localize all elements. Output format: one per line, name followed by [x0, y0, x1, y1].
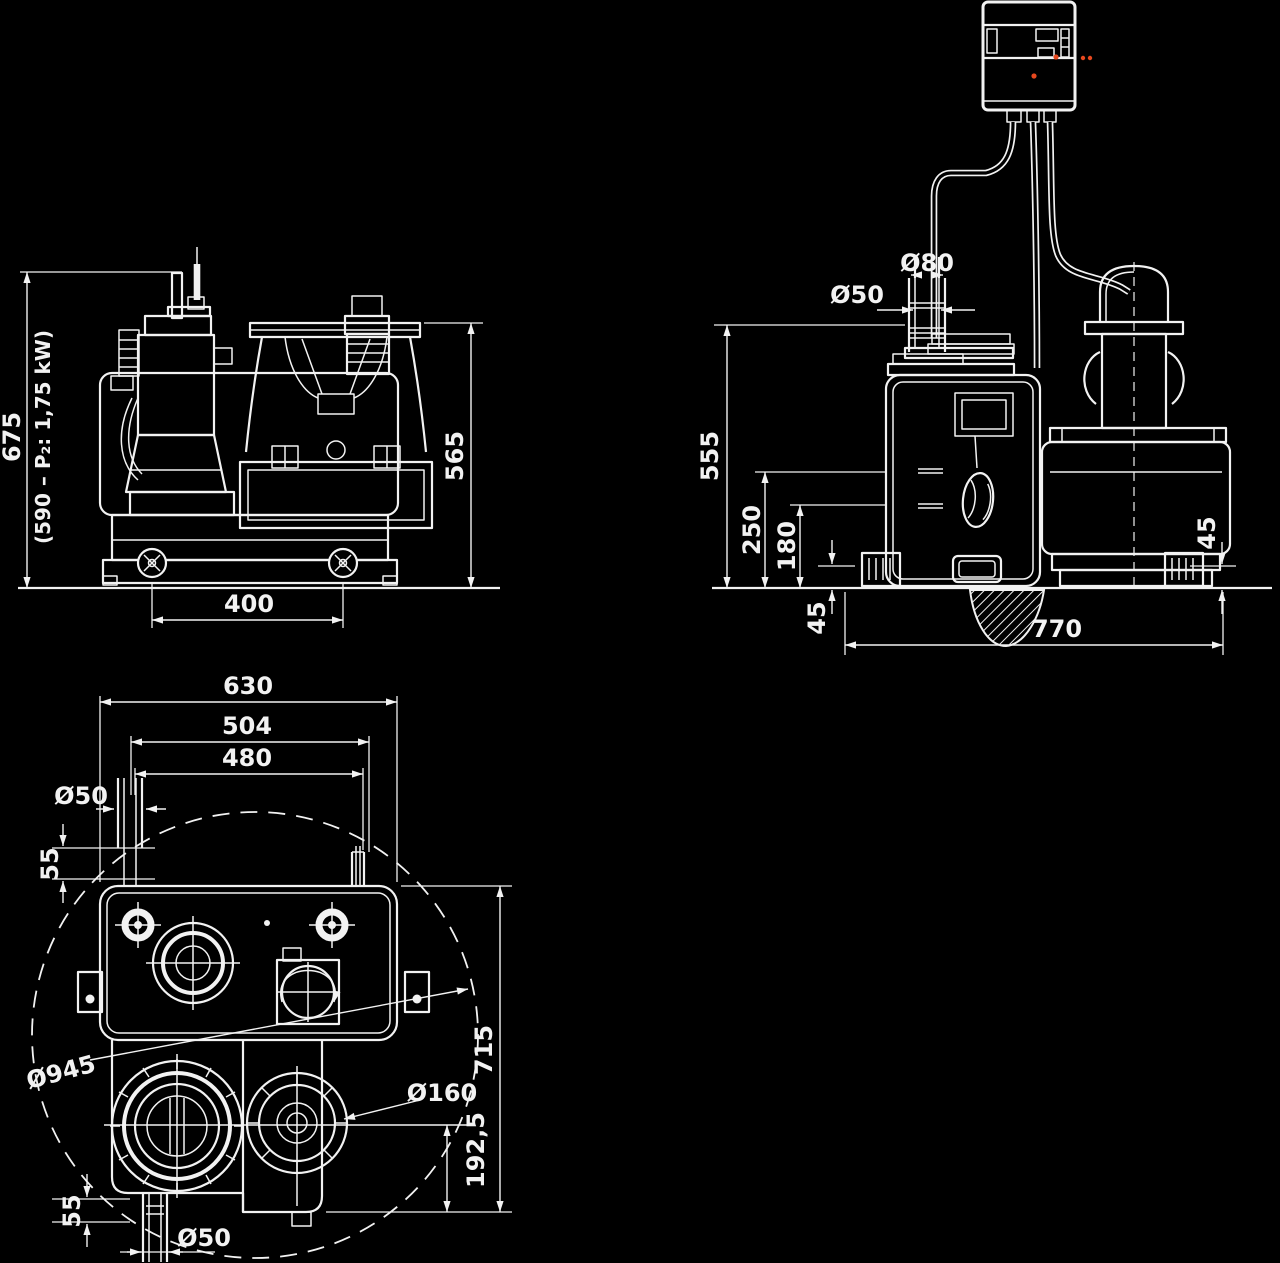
- dim-side-250: 250: [738, 505, 766, 555]
- plan-dim-630: 630: [100, 672, 397, 882]
- dim-front-675: 675: [0, 412, 26, 462]
- front-wheel-right: [329, 549, 357, 577]
- dim-plan-630: 630: [223, 672, 273, 700]
- dim-front-note: (590 – P₂: 1,75 kW): [31, 330, 55, 544]
- cables: [934, 122, 1129, 368]
- float-switch: [960, 472, 995, 529]
- plan-connection-right: [309, 902, 355, 948]
- side-view: Ø80 Ø50 555 250 180 45: [696, 2, 1272, 655]
- dim-plan-55-bottom: 55: [58, 1194, 86, 1227]
- dim-front-565: 565: [441, 431, 469, 481]
- plan-bracket-left: [78, 972, 102, 1012]
- led-indicator: [1088, 56, 1092, 60]
- front-pump-right: [345, 296, 389, 374]
- dim-side-d50: Ø50: [830, 281, 884, 309]
- led-indicator: [1053, 54, 1058, 59]
- plan-bracket-right: [405, 972, 429, 1012]
- plan-dim-55-top: 55: [36, 824, 155, 903]
- led-indicator: [1031, 73, 1036, 78]
- dim-side-45-left: 45: [803, 601, 831, 634]
- dim-side-770: 770: [1032, 615, 1082, 643]
- led-indicator: [1081, 56, 1085, 60]
- plan-dim-motor-d160: Ø160: [344, 1079, 477, 1119]
- dim-plan-55-top: 55: [36, 847, 64, 880]
- plan-dim-drain-d50: Ø50: [120, 1224, 231, 1252]
- plan-vent-pipe-left: [118, 778, 142, 886]
- plan-vent-pipe-right: [352, 846, 364, 886]
- dimension-drawing: 675 (590 – P₂: 1,75 kW) 565 400: [0, 0, 1280, 1263]
- plan-motor: [247, 1066, 347, 1206]
- dim-plan-d160: Ø160: [407, 1079, 478, 1107]
- plan-dim-192-5: 192,5: [447, 1112, 490, 1212]
- front-wheel-left: [138, 549, 166, 577]
- side-dim-pipe-outer: Ø80: [900, 249, 954, 277]
- plan-center-mark: [264, 920, 270, 926]
- side-foot-left: [862, 553, 900, 586]
- dim-side-180: 180: [773, 521, 801, 571]
- dim-plan-d945: Ø945: [23, 1050, 98, 1095]
- plan-inlet-flange: [146, 916, 240, 1010]
- drawing-canvas: 675 (590 – P₂: 1,75 kW) 565 400: [0, 0, 1280, 1263]
- plan-discharge-flange: [110, 1054, 244, 1198]
- plan-dim-480: 480: [135, 744, 363, 850]
- dim-plan-d50-bottom: Ø50: [177, 1224, 231, 1252]
- front-pump-left: [111, 247, 234, 515]
- side-dim-pipe-inner: Ø50: [830, 281, 975, 310]
- dim-plan-192-5: 192,5: [462, 1112, 490, 1188]
- front-pump-middle: [240, 323, 432, 528]
- control-box-display: [1036, 29, 1058, 41]
- dim-side-d80: Ø80: [900, 249, 954, 277]
- side-tank: [886, 334, 1040, 586]
- dim-plan-d50-top: Ø50: [54, 782, 108, 810]
- plan-connection-left: [115, 902, 161, 948]
- plan-view: 630 504 480 Ø50 55 Ø945: [23, 672, 512, 1262]
- dim-side-555: 555: [696, 431, 724, 481]
- front-dim-height-tank: 565: [424, 323, 483, 588]
- front-view: 675 (590 – P₂: 1,75 kW) 565 400: [0, 247, 500, 628]
- dim-plan-715: 715: [470, 1025, 498, 1075]
- dim-front-400: 400: [224, 590, 274, 618]
- dim-plan-480: 480: [222, 744, 272, 772]
- plan-dim-swing-circle: Ø945: [23, 989, 468, 1095]
- dim-side-45-right: 45: [1193, 516, 1221, 549]
- side-dim-250: 250: [738, 472, 886, 588]
- plan-rotation-marker: [277, 948, 339, 1024]
- control-box: [983, 2, 1092, 122]
- dim-plan-504: 504: [222, 712, 272, 740]
- front-dim-wheel-spacing: 400: [152, 584, 343, 628]
- plan-dim-vent-d50: Ø50: [54, 782, 166, 810]
